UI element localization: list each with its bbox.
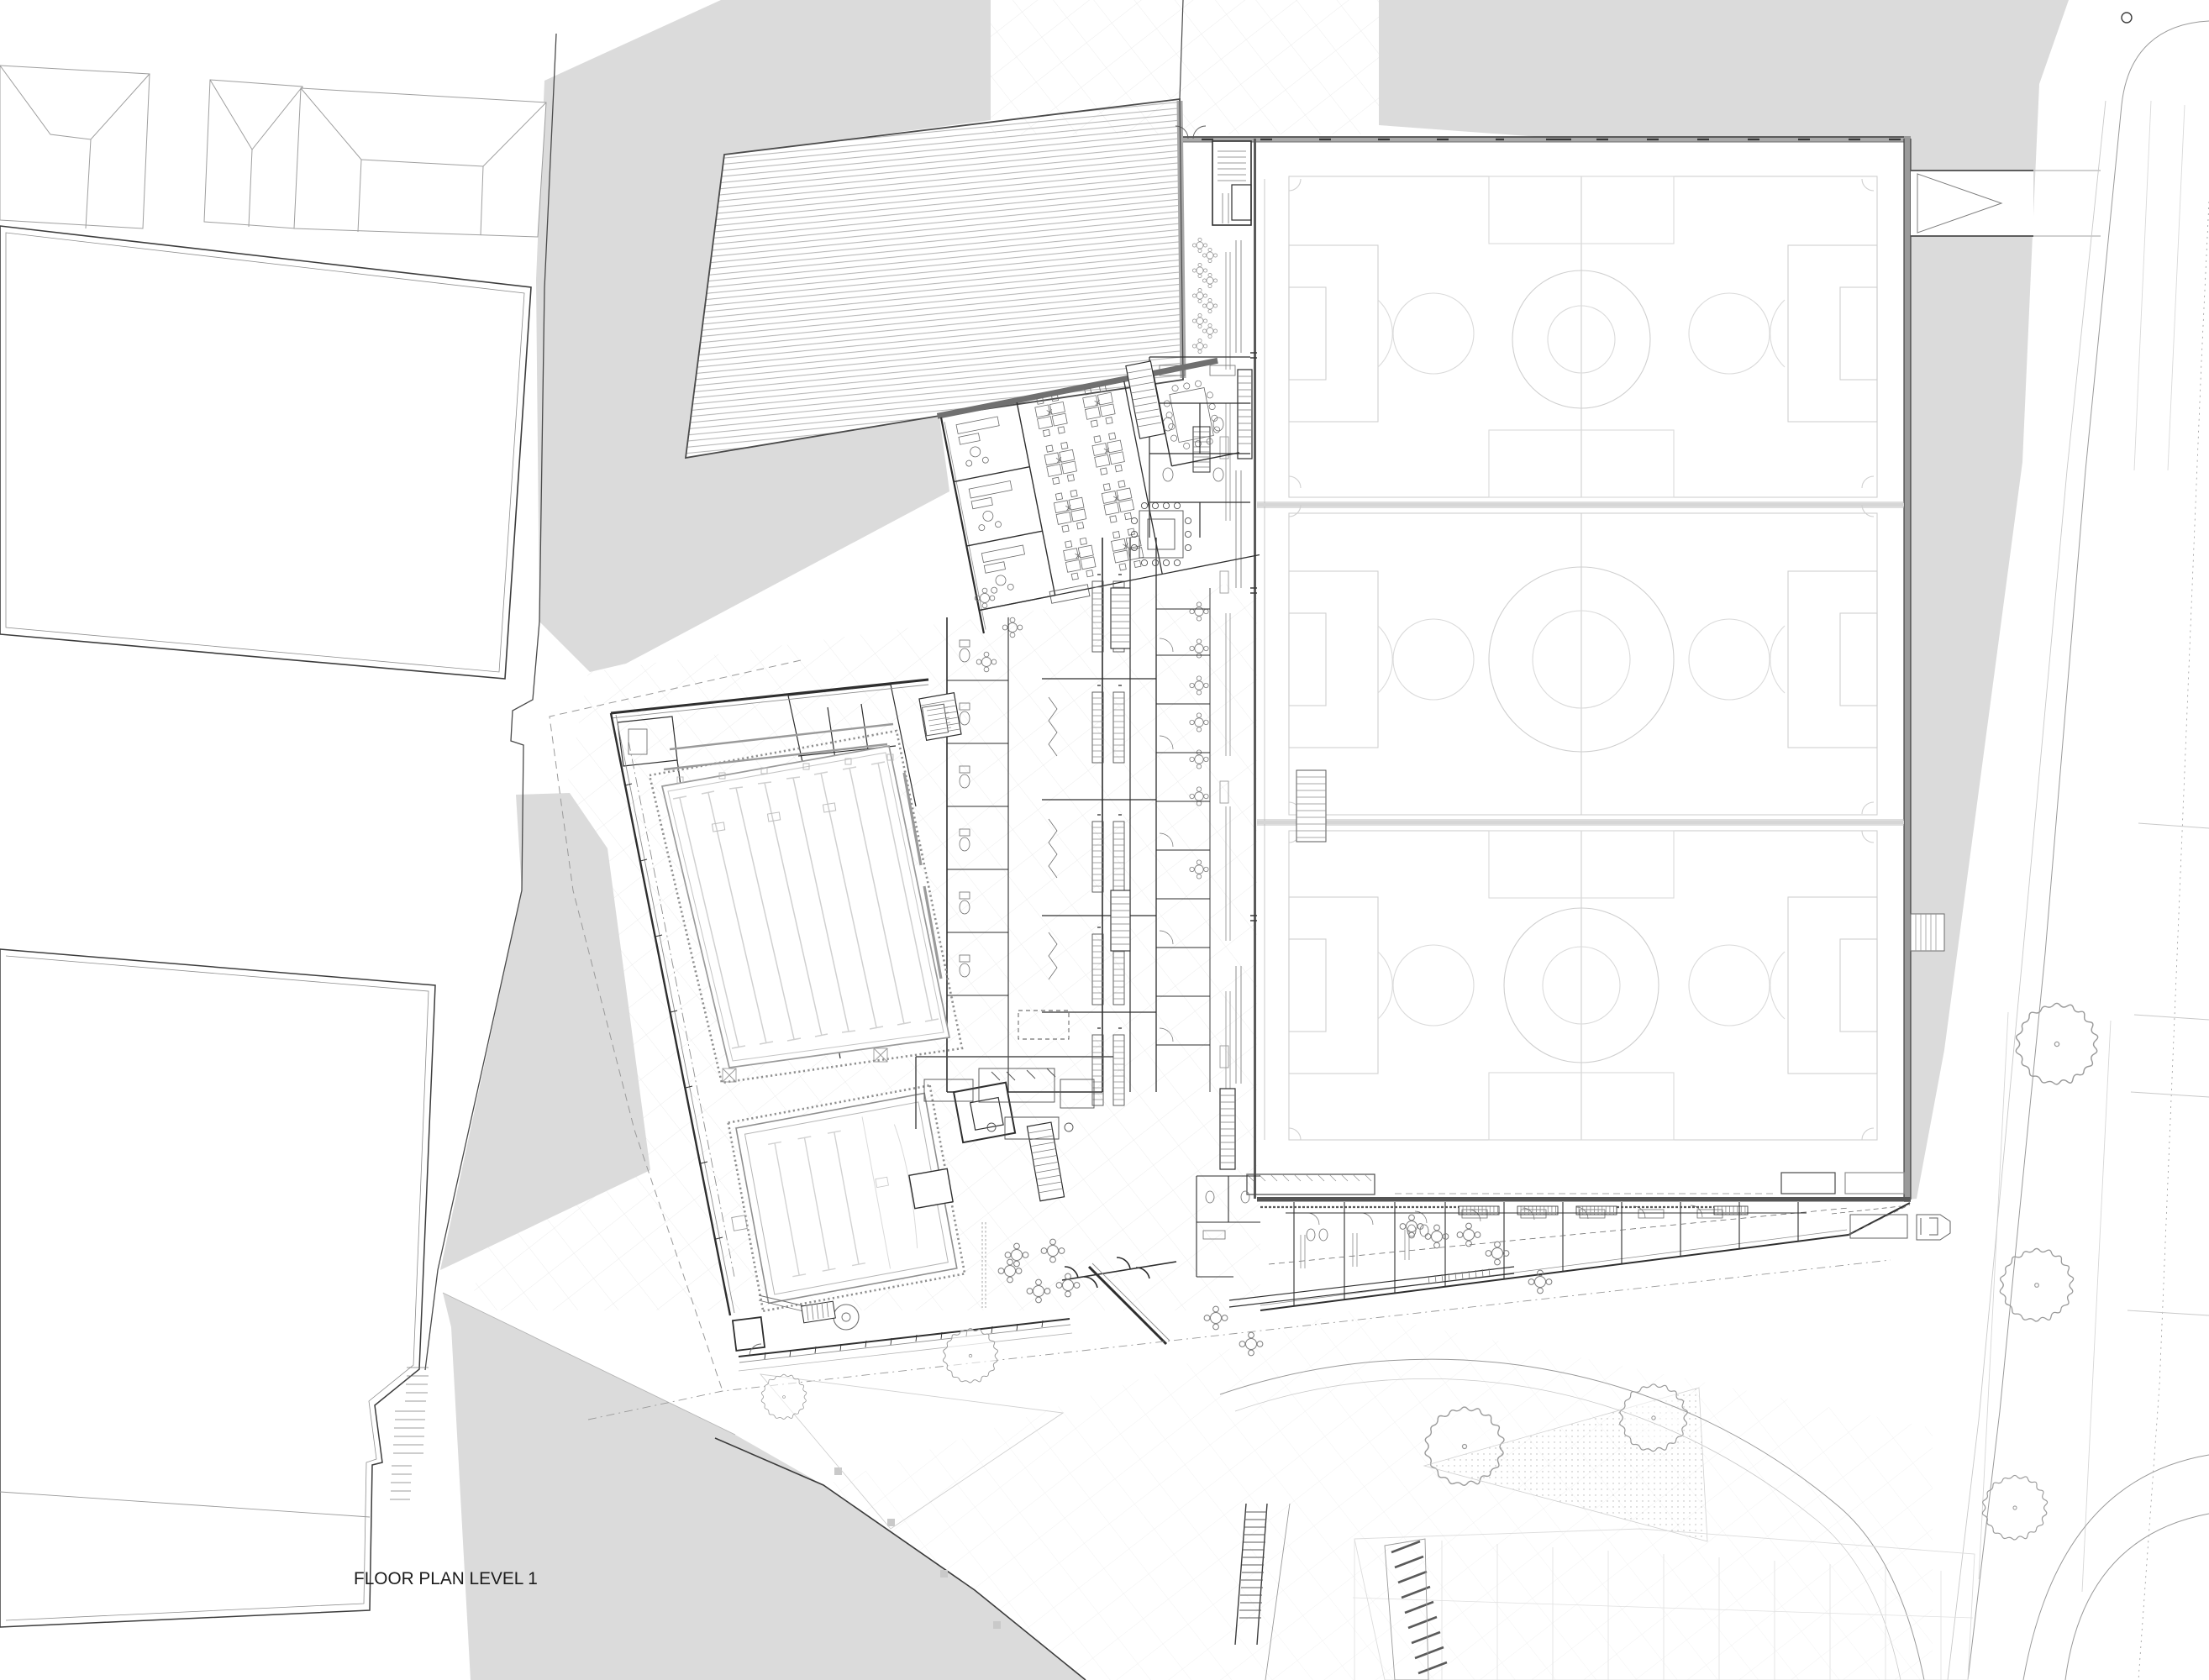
svg-text:FLOOR PLAN LEVEL 1: FLOOR PLAN LEVEL 1 <box>354 1569 538 1588</box>
